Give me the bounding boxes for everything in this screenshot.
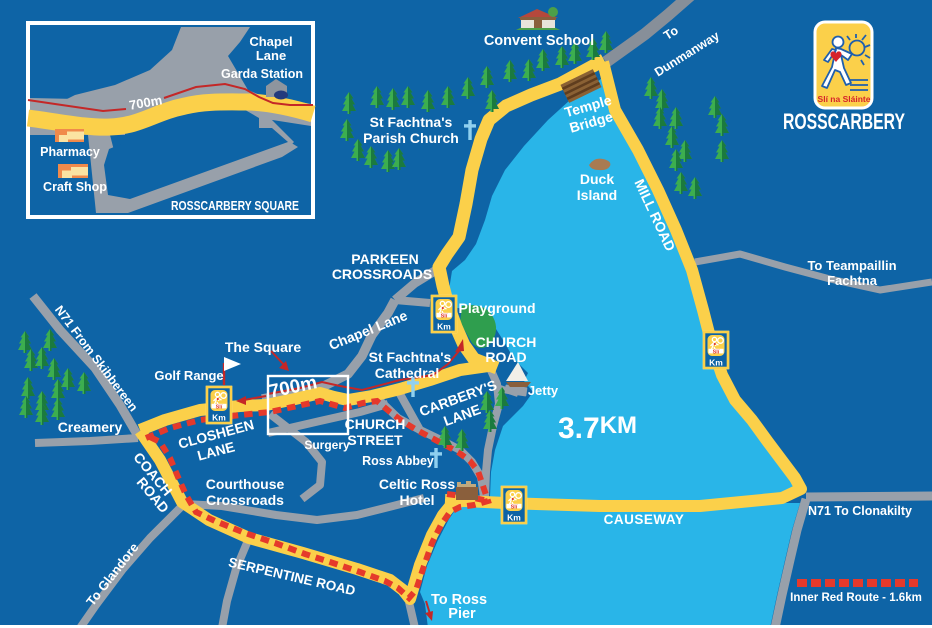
svg-text:CHURCH: CHURCH xyxy=(476,334,537,350)
svg-text:Slí na Sláinte: Slí na Sláinte xyxy=(818,94,871,104)
svg-text:Hotel: Hotel xyxy=(400,492,435,508)
svg-text:Jetty: Jetty xyxy=(528,383,559,398)
svg-text:Cathedral: Cathedral xyxy=(375,365,440,381)
svg-text:Lane: Lane xyxy=(256,48,286,63)
svg-text:CHURCH: CHURCH xyxy=(345,416,406,432)
svg-text:N71 To Clonakilty: N71 To Clonakilty xyxy=(808,504,912,518)
svg-text:To Teampaillin: To Teampaillin xyxy=(807,258,896,273)
svg-text:The Square: The Square xyxy=(225,339,301,355)
svg-text:St Fachtna's: St Fachtna's xyxy=(369,349,452,365)
svg-text:Craft Shop: Craft Shop xyxy=(43,180,107,194)
svg-text:STREET: STREET xyxy=(347,432,403,448)
svg-text:Parish Church: Parish Church xyxy=(363,130,459,146)
svg-text:ROSSCARBERY SQUARE: ROSSCARBERY SQUARE xyxy=(171,198,299,213)
svg-text:Golf Range: Golf Range xyxy=(154,368,223,383)
svg-text:Playground: Playground xyxy=(458,300,535,316)
svg-text:ROSSCARBERY: ROSSCARBERY xyxy=(783,109,905,134)
svg-text:Pharmacy: Pharmacy xyxy=(40,145,100,159)
svg-text:Garda Station: Garda Station xyxy=(221,67,303,81)
svg-text:Celtic Ross: Celtic Ross xyxy=(379,476,455,492)
svg-text:ROAD: ROAD xyxy=(485,349,526,365)
svg-text:Creamery: Creamery xyxy=(58,419,123,435)
svg-text:Ross Abbey: Ross Abbey xyxy=(362,454,434,468)
svg-text:PARKEEN: PARKEEN xyxy=(351,251,418,267)
svg-text:St Fachtna's: St Fachtna's xyxy=(370,114,453,130)
svg-text:CAUSEWAY: CAUSEWAY xyxy=(604,512,685,527)
svg-text:Courthouse: Courthouse xyxy=(206,476,285,492)
svg-text:Chapel: Chapel xyxy=(249,34,292,49)
svg-text:Duck: Duck xyxy=(580,171,614,187)
svg-text:Inner Red Route - 1.6km: Inner Red Route - 1.6km xyxy=(790,592,922,604)
svg-text:Convent School: Convent School xyxy=(484,33,594,49)
svg-text:Island: Island xyxy=(577,187,617,203)
svg-text:Surgery: Surgery xyxy=(304,438,350,452)
svg-text:Crossroads: Crossroads xyxy=(206,492,284,508)
svg-text:Fachtna: Fachtna xyxy=(827,273,878,288)
svg-text:CROSSROADS: CROSSROADS xyxy=(332,266,432,282)
svg-text:Pier: Pier xyxy=(448,606,476,622)
